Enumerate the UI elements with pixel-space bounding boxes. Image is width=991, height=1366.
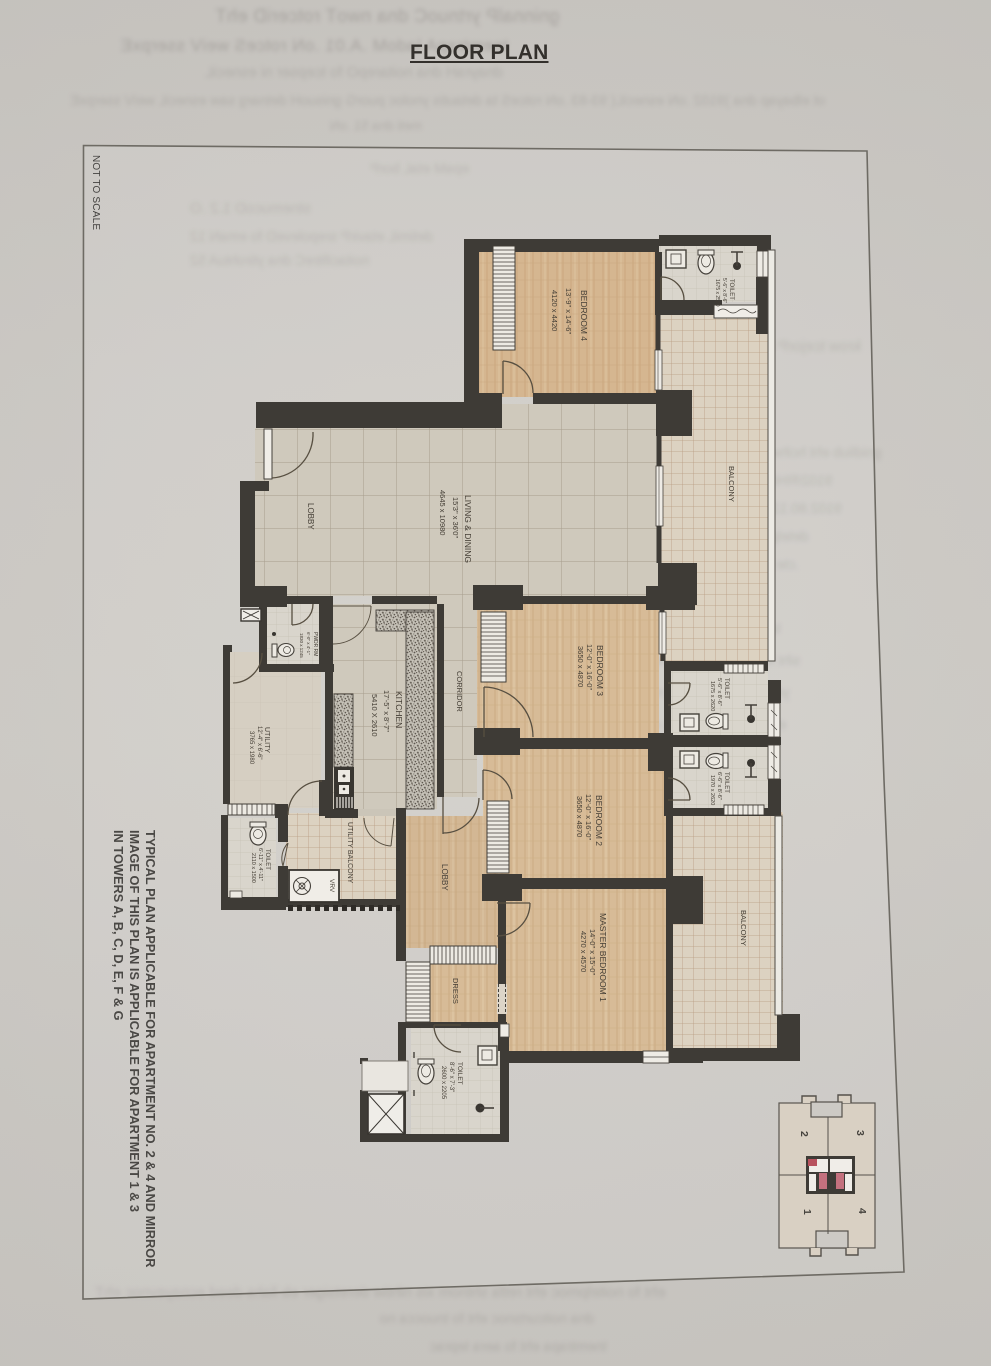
svg-text:1675 x 2620: 1675 x 2620 xyxy=(709,681,715,711)
svg-text:IN TOWERS A, B, C, D, E, F & G: IN TOWERS A, B, C, D, E, F & G xyxy=(111,830,126,1021)
svg-text:12'-4" x 6'-6": 12'-4" x 6'-6" xyxy=(256,726,262,760)
svg-text:4645 x 10980: 4645 x 10980 xyxy=(438,490,447,535)
svg-text:BEDROOM 3: BEDROOM 3 xyxy=(595,645,605,696)
svg-text:13'-9" x 14'-6": 13'-9" x 14'-6" xyxy=(564,288,573,334)
svg-text:DRESS: DRESS xyxy=(451,978,460,1004)
svg-text:5410 X 2610: 5410 X 2610 xyxy=(370,694,379,737)
svg-text:NOT TO SCALE: NOT TO SCALE xyxy=(90,155,101,230)
svg-text:1675 x 2590: 1675 x 2590 xyxy=(714,279,720,307)
svg-text:4: 4 xyxy=(856,1208,868,1214)
svg-text:PWDR RM: PWDR RM xyxy=(312,632,318,656)
svg-text:1830 x 1245: 1830 x 1245 xyxy=(299,633,304,658)
svg-text:UTILITY: UTILITY xyxy=(263,727,270,753)
svg-text:TOILET: TOILET xyxy=(723,678,729,699)
svg-text:2110 x 1500: 2110 x 1500 xyxy=(250,853,256,883)
svg-text:1970 x 2620: 1970 x 2620 xyxy=(709,775,715,805)
svg-text:3650 x 4870: 3650 x 4870 xyxy=(575,796,584,837)
svg-text:LOBBY: LOBBY xyxy=(306,503,315,530)
svg-text:5'-6" x 8'-6": 5'-6" x 8'-6" xyxy=(716,678,722,706)
svg-text:3765 x 1980: 3765 x 1980 xyxy=(248,731,254,765)
svg-text:4120 x 4420: 4120 x 4420 xyxy=(550,290,559,331)
svg-text:KITCHEN: KITCHEN xyxy=(394,691,404,728)
svg-text:8'-6" x 7'-3": 8'-6" x 7'-3" xyxy=(448,1062,454,1092)
svg-text:TOILET: TOILET xyxy=(723,772,729,793)
svg-text:LOBBY: LOBBY xyxy=(440,864,449,891)
svg-text:2600 x 2205: 2600 x 2205 xyxy=(440,1066,446,1100)
svg-text:6'-11" x 4'-11": 6'-11" x 4'-11" xyxy=(257,848,263,881)
svg-text:17'-5" x 8'-7": 17'-5" x 8'-7" xyxy=(382,690,391,732)
svg-text:LIVING & DINING: LIVING & DINING xyxy=(463,495,473,563)
svg-text:1: 1 xyxy=(801,1209,813,1215)
svg-text:UTILITY BALCONY: UTILITY BALCONY xyxy=(346,822,353,884)
svg-text:6'-6" x 8'-6": 6'-6" x 8'-6" xyxy=(716,772,722,800)
svg-text:12'-0" x 16'-0": 12'-0" x 16'-0" xyxy=(584,794,593,840)
svg-text:2: 2 xyxy=(798,1131,810,1137)
svg-text:BALCONY: BALCONY xyxy=(727,466,736,502)
svg-text:3650 x 4870: 3650 x 4870 xyxy=(576,646,585,687)
svg-text:14'-0" x 15'-0": 14'-0" x 15'-0" xyxy=(588,929,597,975)
svg-text:CORRIDOR: CORRIDOR xyxy=(455,671,464,712)
svg-text:3: 3 xyxy=(854,1130,866,1136)
svg-text:BEDROOM 2: BEDROOM 2 xyxy=(594,795,604,846)
svg-text:TOILET: TOILET xyxy=(456,1062,463,1085)
svg-text:4270 x 4570: 4270 x 4570 xyxy=(579,931,588,972)
svg-text:15'3" x 36'0": 15'3" x 36'0" xyxy=(451,497,460,538)
svg-text:6'-0" x 4'-1": 6'-0" x 4'-1" xyxy=(306,632,311,655)
svg-text:BALCONY: BALCONY xyxy=(739,910,748,946)
svg-text:BEDROOM 4: BEDROOM 4 xyxy=(579,290,589,341)
svg-text:12'-0" x 16'-0": 12'-0" x 16'-0" xyxy=(585,644,594,690)
svg-text:TOILET: TOILET xyxy=(264,849,270,870)
svg-text:TOILET: TOILET xyxy=(728,279,734,300)
svg-text:VRV: VRV xyxy=(328,879,335,893)
svg-text:TYPICAL PLAN APPLICABLE FOR AP: TYPICAL PLAN APPLICABLE FOR APARTMENT NO… xyxy=(143,830,158,1267)
svg-text:5'-6" x 8'-6": 5'-6" x 8'-6" xyxy=(721,278,727,303)
svg-text:MASTER BEDROOM 1: MASTER BEDROOM 1 xyxy=(598,913,608,1002)
svg-text:IMAGE OF THIS PLAN IS APPLICAB: IMAGE OF THIS PLAN IS APPLICABLE FOR APA… xyxy=(127,830,142,1212)
